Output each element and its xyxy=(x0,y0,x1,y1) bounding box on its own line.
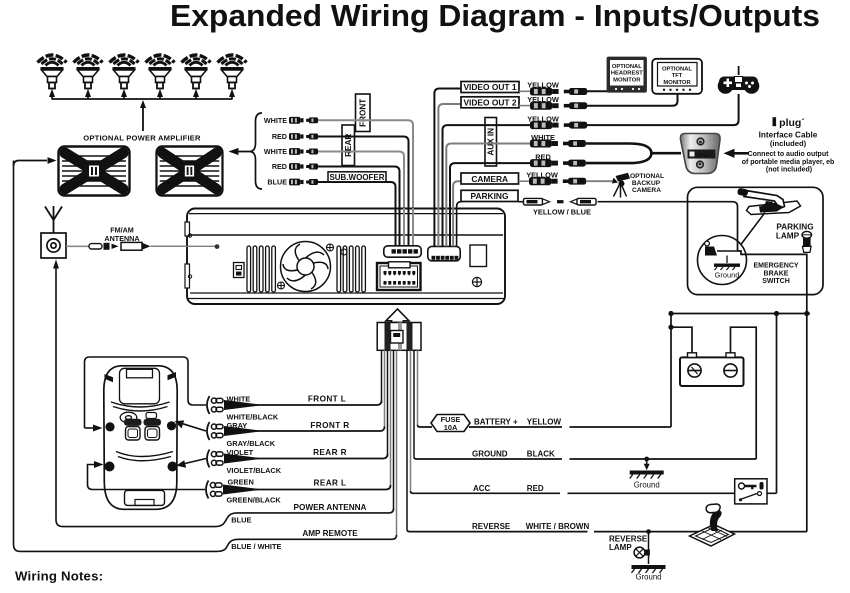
svg-text:HEADREST: HEADREST xyxy=(611,71,643,77)
svg-text:OPTIONAL: OPTIONAL xyxy=(612,64,642,70)
svg-text:MONITOR: MONITOR xyxy=(613,77,641,83)
svg-text:OPTIONAL: OPTIONAL xyxy=(662,67,692,73)
svg-text:BATTERY +: BATTERY + xyxy=(474,418,518,427)
svg-text:Expanded Wiring Diagram - Inpu: Expanded Wiring Diagram - Inputs/Outputs xyxy=(170,0,820,33)
svg-text:OPTIONAL: OPTIONAL xyxy=(630,173,664,180)
svg-text:(not included): (not included) xyxy=(766,167,812,174)
svg-text:Ground: Ground xyxy=(635,573,661,582)
svg-text:BACKUP: BACKUP xyxy=(632,180,661,187)
svg-text:VIDEO OUT 2: VIDEO OUT 2 xyxy=(463,98,516,108)
svg-text:YELLOW: YELLOW xyxy=(527,418,562,427)
svg-text:LAMP: LAMP xyxy=(776,232,800,241)
svg-text:Ground: Ground xyxy=(634,481,660,490)
svg-text:FRONT R: FRONT R xyxy=(310,421,349,430)
svg-text:PARKING: PARKING xyxy=(471,191,509,201)
svg-text:WHITE: WHITE xyxy=(264,147,287,156)
svg-text:POWER ANTENNA: POWER ANTENNA xyxy=(294,503,367,512)
svg-text:(included): (included) xyxy=(770,139,807,148)
svg-text:WHITE / BROWN: WHITE / BROWN xyxy=(526,522,590,531)
svg-text:FRONT: FRONT xyxy=(359,99,368,127)
svg-text:PARKING: PARKING xyxy=(776,223,813,232)
svg-text:LAMP: LAMP xyxy=(609,543,632,552)
svg-text:MONITOR: MONITOR xyxy=(663,80,691,86)
svg-text:WHITE: WHITE xyxy=(264,116,287,125)
svg-text:Ground: Ground xyxy=(715,271,740,280)
svg-text:VIDEO OUT 1: VIDEO OUT 1 xyxy=(463,82,516,92)
svg-text:6ep4: 6ep4 xyxy=(698,153,712,159)
svg-text:ACC: ACC xyxy=(473,484,491,493)
svg-text:VIOLET/BLACK: VIOLET/BLACK xyxy=(227,466,282,475)
svg-text:BLUE: BLUE xyxy=(231,515,251,524)
svg-text:REAR R: REAR R xyxy=(313,448,347,457)
svg-text:SWITCH: SWITCH xyxy=(762,278,790,285)
svg-text:EMERGENCY: EMERGENCY xyxy=(753,263,798,270)
svg-text:Wiring Notes:: Wiring Notes: xyxy=(15,569,103,584)
svg-text:OPTIONAL POWER AMPLIFIER: OPTIONAL POWER AMPLIFIER xyxy=(83,134,201,143)
svg-text:FRONT L: FRONT L xyxy=(308,395,346,404)
svg-text:RED: RED xyxy=(272,132,287,141)
svg-text:BLUE / WHITE: BLUE / WHITE xyxy=(231,542,281,551)
svg-text:RED: RED xyxy=(527,484,544,493)
svg-text:RED: RED xyxy=(272,162,287,171)
svg-text:SUB.WOOFER: SUB.WOOFER xyxy=(329,173,384,182)
svg-text:GREEN/BLACK: GREEN/BLACK xyxy=(227,495,282,504)
svg-text:GREEN: GREEN xyxy=(228,477,254,486)
svg-text:BRAKE: BRAKE xyxy=(764,270,789,277)
svg-text:BLACK: BLACK xyxy=(527,450,555,459)
svg-text:TFT: TFT xyxy=(672,73,683,79)
svg-text:10A: 10A xyxy=(444,423,458,432)
svg-text:AMP REMOTE: AMP REMOTE xyxy=(302,529,358,538)
svg-text:REAR L: REAR L xyxy=(314,479,347,488)
svg-text:GRAY/BLACK: GRAY/BLACK xyxy=(227,439,276,448)
svg-text:REVERSE: REVERSE xyxy=(472,522,511,531)
svg-text:GROUND: GROUND xyxy=(472,450,508,459)
svg-text:AUX IN: AUX IN xyxy=(486,128,495,156)
svg-text:CAMERA: CAMERA xyxy=(632,187,661,194)
svg-text:YELLOW / BLUE: YELLOW / BLUE xyxy=(533,208,591,217)
svg-text:CAMERA: CAMERA xyxy=(471,174,508,184)
svg-text:of portable media player, eb: of portable media player, eb xyxy=(742,159,835,166)
svg-text:Connect to audio output: Connect to audio output xyxy=(748,151,830,158)
svg-text:plug´: plug´ xyxy=(779,117,805,129)
svg-text:BLUE: BLUE xyxy=(267,178,287,187)
